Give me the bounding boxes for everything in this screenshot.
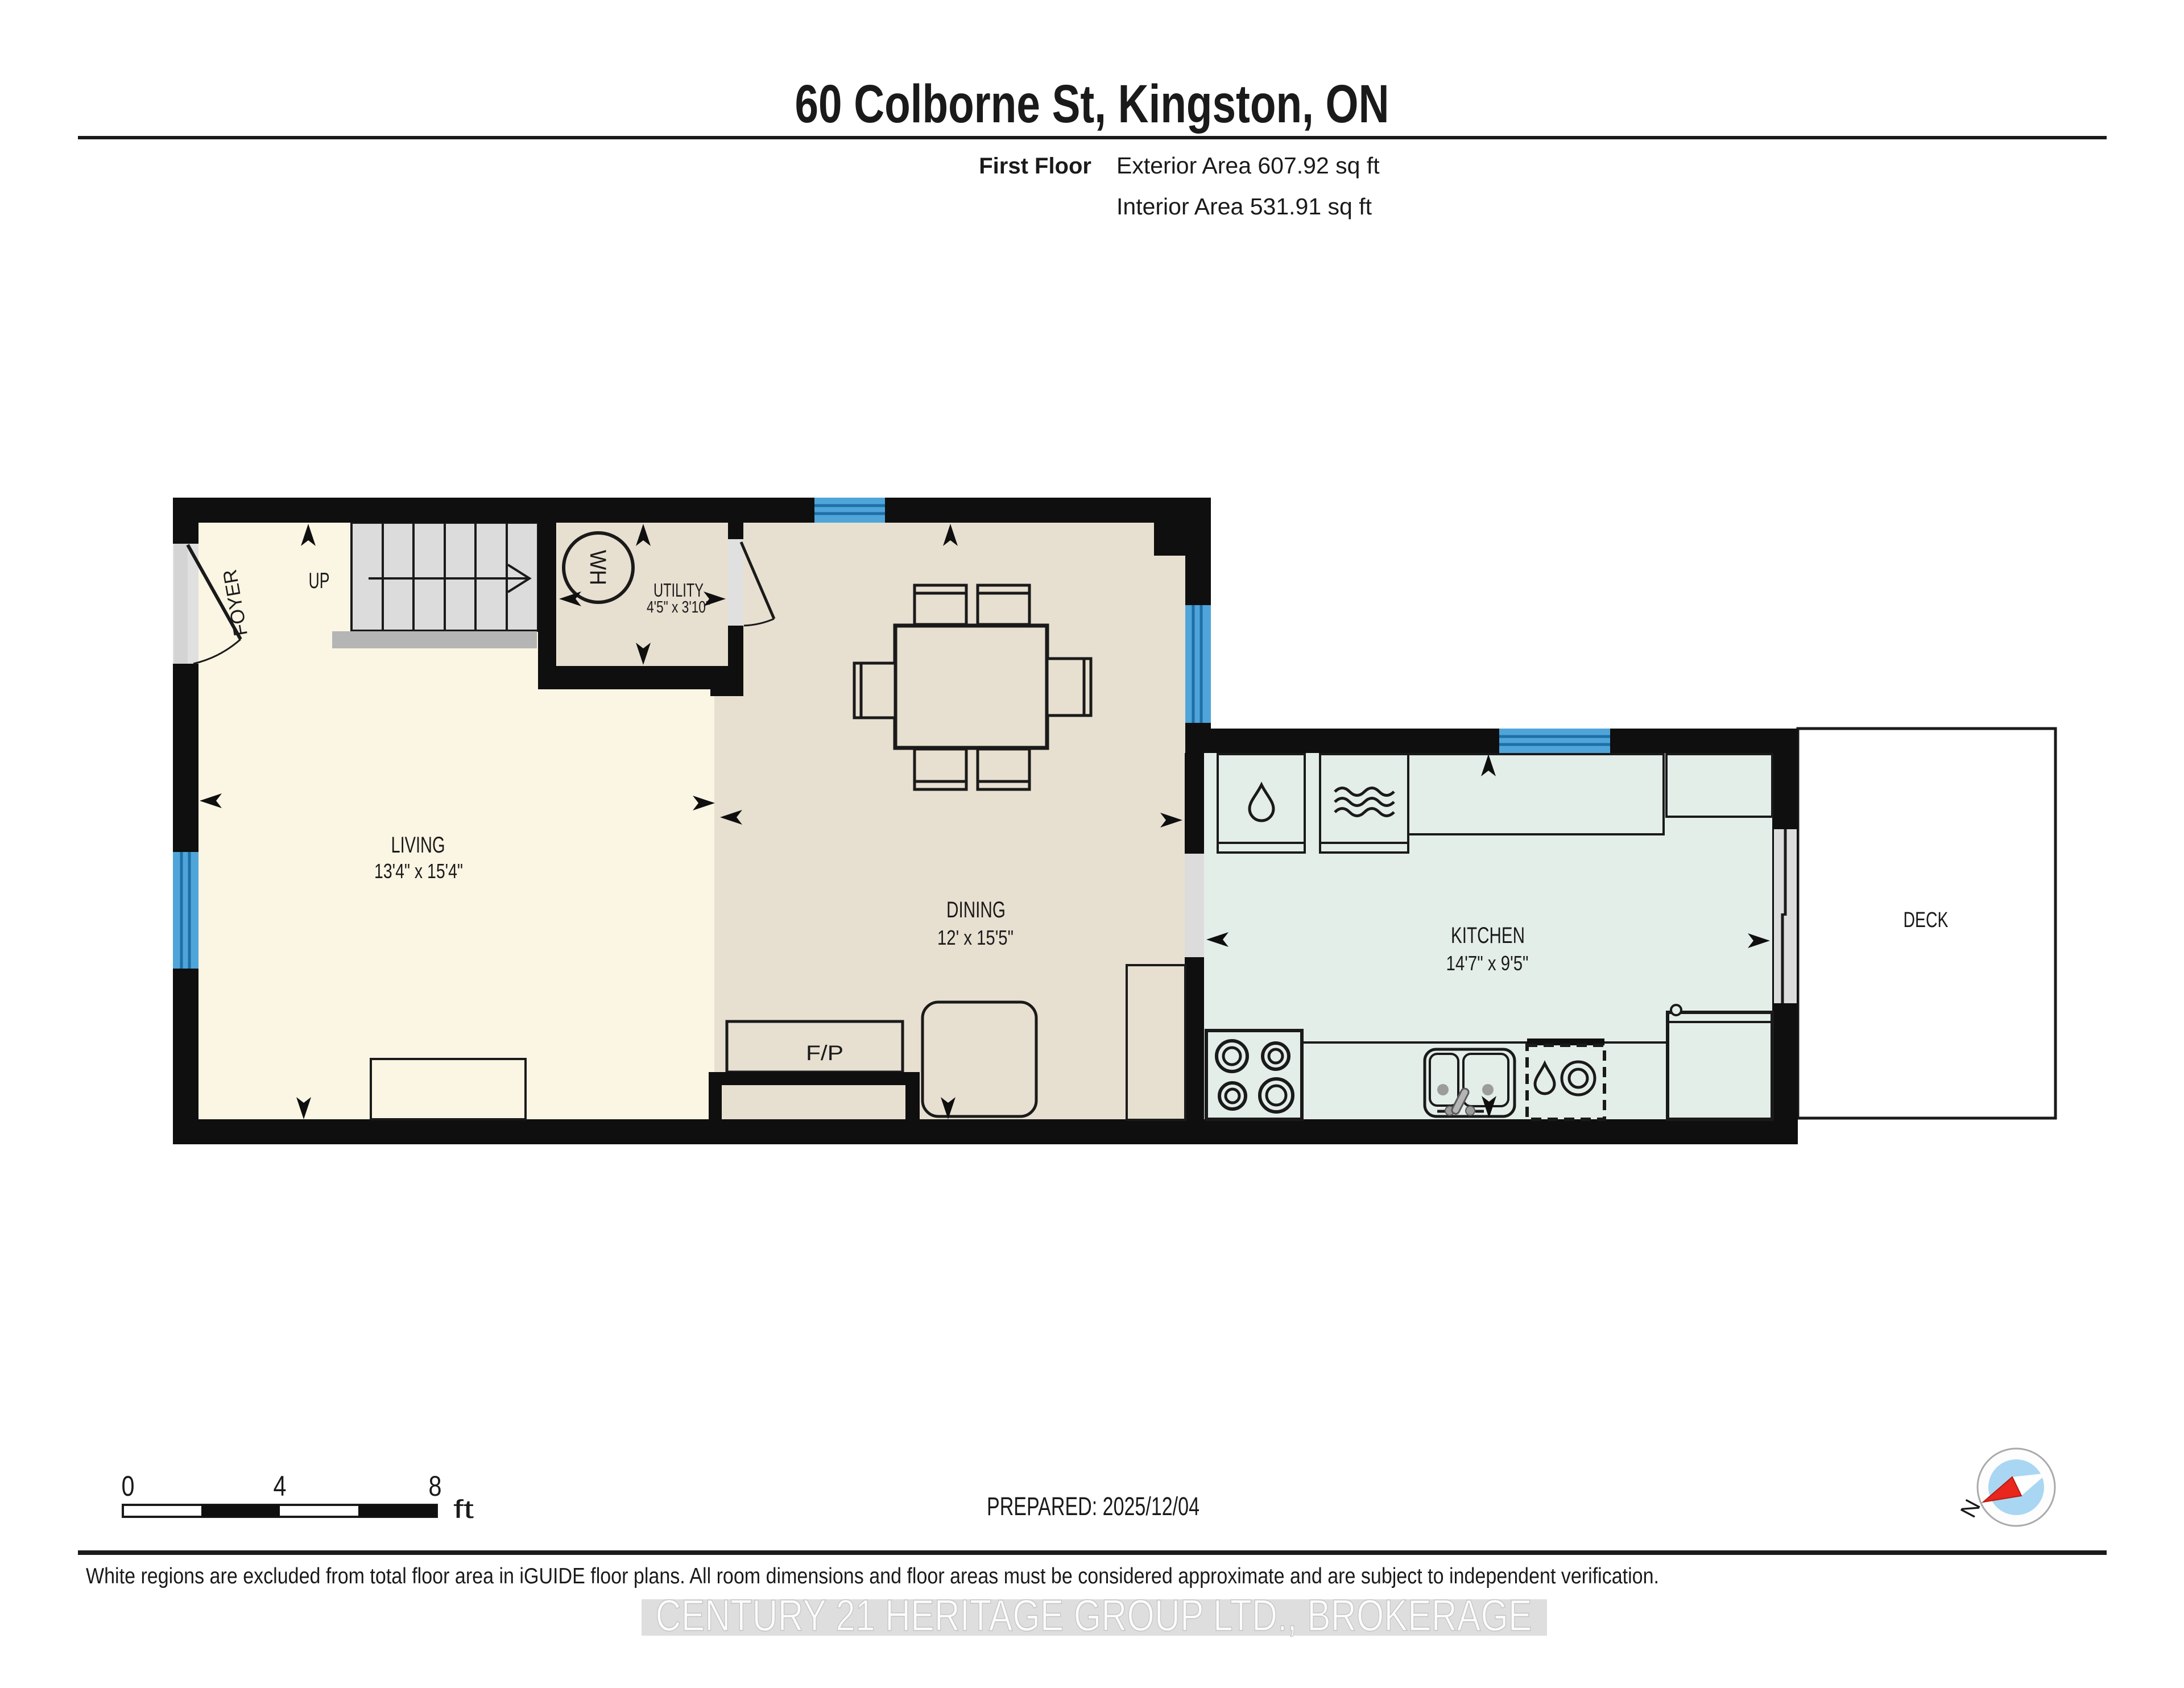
svg-text:First Floor: First Floor (979, 154, 1091, 179)
svg-text:4'5" x 3'10": 4'5" x 3'10" (647, 598, 710, 617)
svg-text:12' x 15'5": 12' x 15'5" (937, 926, 1014, 949)
svg-text:ft: ft (453, 1495, 474, 1524)
svg-text:UP: UP (309, 569, 330, 593)
svg-text:White regions are excluded fro: White regions are excluded from total fl… (86, 1564, 1659, 1588)
svg-text:UTILITY: UTILITY (653, 580, 704, 601)
svg-text:DINING: DINING (946, 897, 1006, 922)
svg-text:0: 0 (122, 1470, 135, 1502)
svg-text:PREPARED: 2025/12/04: PREPARED: 2025/12/04 (987, 1492, 1199, 1521)
svg-text:4: 4 (274, 1470, 287, 1502)
svg-text:8: 8 (429, 1470, 442, 1502)
svg-text:WH: WH (585, 550, 610, 585)
svg-text:DECK: DECK (1904, 908, 1949, 932)
svg-text:LIVING: LIVING (391, 833, 445, 858)
svg-text:13'4" x 15'4": 13'4" x 15'4" (374, 859, 463, 883)
svg-text:60 Colborne St, Kingston, ON: 60 Colborne St, Kingston, ON (795, 74, 1389, 134)
svg-text:KITCHEN: KITCHEN (1451, 923, 1525, 948)
svg-text:14'7" x 9'5": 14'7" x 9'5" (1446, 951, 1529, 975)
svg-text:Exterior Area 607.92 sq ft: Exterior Area 607.92 sq ft (1116, 152, 1380, 179)
svg-text:F/P: F/P (806, 1041, 843, 1065)
svg-text:Interior Area 531.91 sq ft: Interior Area 531.91 sq ft (1116, 193, 1372, 220)
svg-text:CENTURY 21 HERITAGE GROUP LTD.: CENTURY 21 HERITAGE GROUP LTD., BROKERAG… (656, 1590, 1532, 1640)
